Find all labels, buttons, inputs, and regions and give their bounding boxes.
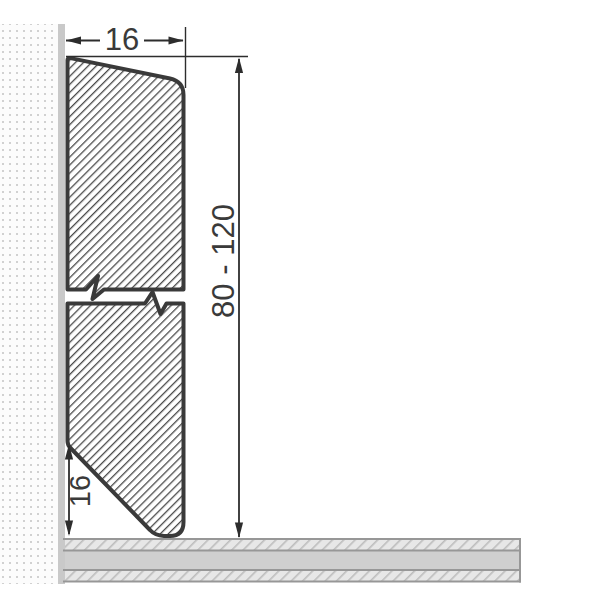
floor-hatch-layer-top [65, 540, 521, 550]
floor [63, 538, 521, 583]
arrow-down-icon [235, 523, 243, 539]
floor-hatch-layer-bottom [65, 571, 521, 581]
skirting-profile-drawing: 16 80 - 120 16 [0, 0, 604, 604]
floor-core-layer [65, 551, 521, 569]
dimension-label-height-range: 80 - 120 [206, 204, 241, 318]
arrow-left-icon [66, 36, 81, 44]
wall [0, 24, 65, 584]
arrow-up-icon [235, 58, 243, 74]
dimension-label-bottom-bevel: 16 [64, 475, 96, 507]
arrow-right-icon [169, 36, 184, 44]
skirting-profile [68, 58, 184, 536]
dimension-label-top-width: 16 [105, 22, 139, 57]
skirting-profile-upper-section [68, 58, 184, 299]
arrow-down-icon [65, 521, 73, 537]
wall-texture [0, 24, 58, 584]
technical-drawing-canvas: 16 80 - 120 16 [0, 0, 604, 604]
